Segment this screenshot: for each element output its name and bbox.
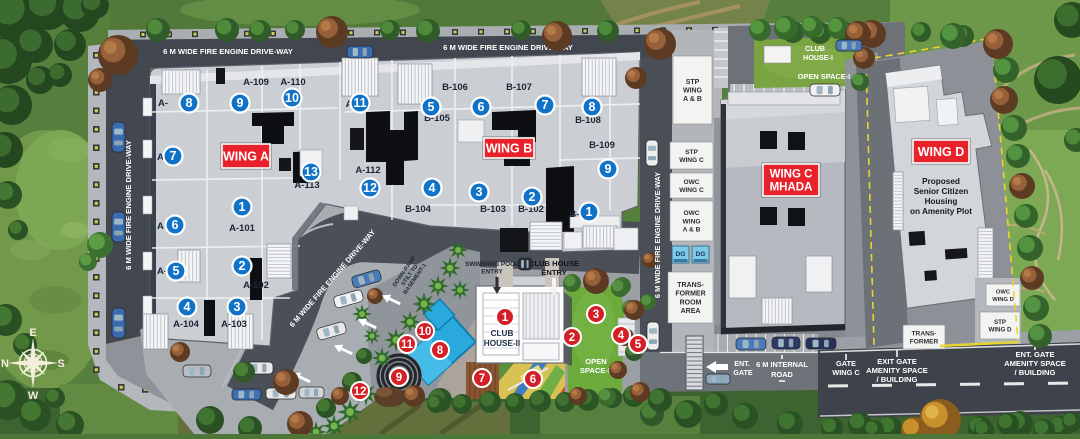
svg-text:A-103: A-103 [221, 319, 247, 330]
svg-text:10: 10 [285, 91, 299, 105]
svg-text:4: 4 [429, 181, 436, 195]
svg-text:9: 9 [396, 372, 402, 384]
svg-text:SWIMMING POOL: SWIMMING POOL [465, 261, 519, 268]
svg-text:6 M WIDE FIRE ENGINE DRIVE-WAY: 6 M WIDE FIRE ENGINE DRIVE-WAY [124, 140, 133, 270]
svg-text:6: 6 [530, 374, 536, 386]
svg-text:2: 2 [239, 259, 246, 273]
svg-text:WING D: WING D [918, 145, 965, 159]
svg-text:GATE: GATE [836, 359, 856, 368]
svg-text:DG: DG [696, 251, 706, 258]
svg-text:GATE: GATE [733, 368, 753, 377]
svg-text:A-112: A-112 [355, 165, 380, 176]
svg-text:6: 6 [172, 218, 179, 232]
svg-text:A-110: A-110 [280, 77, 305, 88]
svg-text:9: 9 [237, 96, 244, 110]
svg-text:CLUB: CLUB [805, 44, 825, 53]
svg-text:ROOM: ROOM [680, 299, 702, 306]
svg-text:A-: A- [158, 98, 168, 109]
svg-text:11: 11 [353, 96, 366, 110]
svg-text:WING D: WING D [988, 327, 1012, 334]
svg-text:ENTRY: ENTRY [481, 269, 503, 276]
svg-text:FORMER: FORMER [910, 339, 939, 346]
svg-text:A-104: A-104 [173, 319, 200, 330]
svg-text:TRANS-: TRANS- [912, 330, 937, 337]
svg-text:OPEN: OPEN [585, 357, 607, 366]
svg-text:7: 7 [542, 98, 549, 112]
svg-text:W: W [28, 390, 39, 402]
svg-text:2: 2 [529, 190, 536, 204]
svg-text:11: 11 [401, 339, 414, 351]
svg-text:OWC: OWC [996, 289, 1011, 295]
svg-text:STP: STP [686, 79, 700, 86]
svg-text:12: 12 [354, 386, 367, 398]
svg-text:/ BUILDING: / BUILDING [1015, 368, 1056, 377]
svg-text:5: 5 [173, 264, 180, 278]
svg-text:TRANS-: TRANS- [677, 282, 704, 289]
svg-text:N: N [1, 358, 9, 370]
svg-text:Proposed: Proposed [922, 177, 960, 186]
svg-text:WING B: WING B [486, 142, 533, 156]
svg-text:4: 4 [184, 300, 191, 314]
svg-text:WING: WING [683, 218, 701, 225]
svg-text:STP: STP [685, 149, 698, 156]
svg-text:3: 3 [234, 300, 241, 314]
svg-text:on Amenity Plot: on Amenity Plot [910, 207, 972, 216]
svg-text:ENT. GATE: ENT. GATE [1015, 350, 1054, 359]
svg-text:6 M INTERNAL: 6 M INTERNAL [756, 360, 808, 369]
svg-text:6: 6 [478, 100, 485, 114]
svg-text:Housing: Housing [925, 197, 958, 206]
svg-text:WING C: WING C [770, 169, 813, 181]
svg-text:12: 12 [363, 181, 377, 195]
svg-text:Senior Citizen: Senior Citizen [914, 187, 969, 196]
svg-text:7: 7 [170, 149, 177, 163]
svg-text:1: 1 [586, 205, 593, 219]
svg-text:8: 8 [589, 100, 596, 114]
svg-text:5: 5 [635, 339, 642, 351]
svg-text:MHADA: MHADA [770, 182, 813, 194]
svg-text:8: 8 [437, 345, 444, 357]
svg-text:EXIT GATE: EXIT GATE [877, 357, 917, 366]
svg-text:AREA: AREA [681, 308, 701, 315]
svg-text:WING: WING [683, 88, 703, 95]
svg-text:AMENITY SPACE: AMENITY SPACE [1004, 359, 1066, 368]
svg-text:CLUB: CLUB [491, 329, 514, 338]
svg-text:6 M WIDE FIRE ENGINE DRIVE-WAY: 6 M WIDE FIRE ENGINE DRIVE-WAY [163, 47, 293, 56]
svg-text:B-107: B-107 [506, 82, 532, 93]
svg-text:WING C: WING C [679, 187, 704, 194]
svg-text:ENTRY: ENTRY [541, 268, 566, 277]
svg-text:B-106: B-106 [442, 82, 468, 93]
svg-text:3: 3 [593, 309, 599, 321]
svg-text:HOUSE-I: HOUSE-I [803, 53, 833, 62]
svg-text:OWC: OWC [683, 179, 699, 186]
svg-text:ROAD: ROAD [771, 370, 793, 379]
svg-text:ENT.: ENT. [734, 359, 750, 368]
svg-text:5: 5 [428, 100, 435, 114]
svg-text:FORMER: FORMER [675, 291, 705, 298]
svg-text:WING C: WING C [679, 157, 704, 164]
svg-text:1: 1 [502, 312, 509, 324]
svg-text:OWC: OWC [683, 210, 699, 217]
svg-text:SPACE-II: SPACE-II [580, 366, 612, 375]
svg-text:A-101: A-101 [229, 223, 256, 234]
svg-text:13: 13 [304, 165, 318, 179]
svg-text:/ BUILDING: / BUILDING [877, 375, 918, 384]
svg-text:HOUSE-II: HOUSE-II [484, 339, 520, 348]
svg-text:A-102: A-102 [243, 280, 269, 291]
svg-text:2: 2 [569, 332, 575, 344]
svg-text:A & B: A & B [683, 96, 702, 103]
svg-text:A-109: A-109 [243, 77, 269, 88]
svg-text:AMENITY SPACE: AMENITY SPACE [866, 366, 928, 375]
svg-text:DG: DG [676, 251, 686, 258]
svg-text:4: 4 [618, 330, 625, 342]
svg-text:8: 8 [186, 96, 193, 110]
svg-text:WING C: WING C [832, 368, 860, 377]
svg-text:A & B: A & B [683, 227, 701, 234]
svg-text:1: 1 [239, 200, 246, 214]
svg-text:10: 10 [419, 326, 432, 338]
svg-text:3: 3 [476, 185, 483, 199]
svg-text:7: 7 [479, 373, 485, 385]
svg-text:S: S [57, 358, 64, 370]
svg-text:B-109: B-109 [589, 140, 615, 151]
svg-text:CLUB HOUSE: CLUB HOUSE [529, 259, 579, 268]
svg-text:B-104: B-104 [405, 204, 432, 215]
svg-text:B-103: B-103 [480, 204, 506, 215]
svg-text:STP: STP [994, 319, 1006, 326]
svg-text:OPEN SPACE-I: OPEN SPACE-I [798, 72, 850, 81]
svg-text:6 M WIDE FIRE ENGINE DRIVE-WAY: 6 M WIDE FIRE ENGINE DRIVE-WAY [653, 172, 662, 298]
svg-text:E: E [29, 327, 36, 339]
svg-text:WING A: WING A [223, 150, 269, 164]
svg-text:9: 9 [605, 162, 612, 176]
svg-text:WING D: WING D [992, 297, 1014, 303]
